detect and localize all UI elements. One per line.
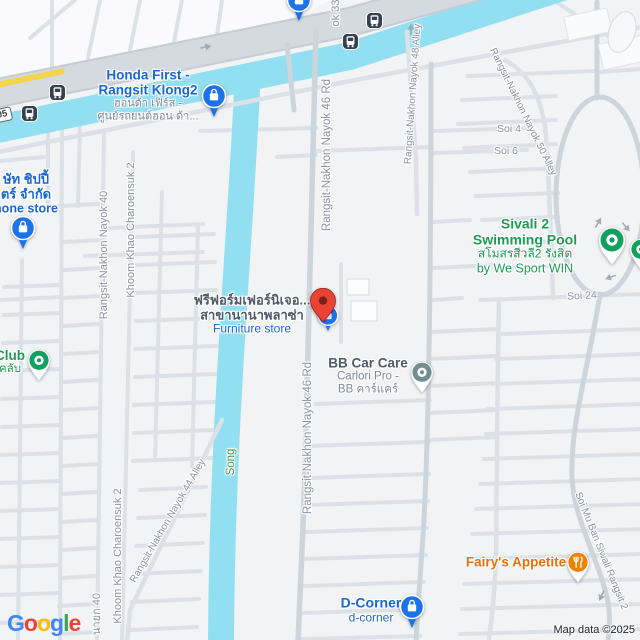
one-way-arrow-icon xyxy=(198,37,211,47)
bb-car-care-label[interactable]: BB Car CareCarlori Pro -BB คาร์แคร์ xyxy=(328,356,408,397)
google-logo-letter: o xyxy=(24,610,37,636)
d-corner-pin[interactable] xyxy=(397,594,427,637)
bus-icon xyxy=(366,12,383,29)
bus-stop-icon[interactable] xyxy=(49,84,66,106)
canal-vertical xyxy=(221,70,248,640)
bus-icon xyxy=(49,84,66,101)
google-logo-letter: o xyxy=(37,610,50,636)
honda-first-label-line: Honda First - xyxy=(97,68,198,83)
bb-car-care-label-line: BB คาร์แคร์ xyxy=(328,384,408,397)
furniture-store-label[interactable]: ฟรีฟอร์มเฟอร์นิเจอ...สาขานานาพลาซ่าFurni… xyxy=(194,294,311,337)
map-attribution: Map data ©2025 xyxy=(554,624,636,636)
fairys-appetite-label-line: Fairy's Appetite xyxy=(466,554,566,569)
poi-cut-top-pin[interactable] xyxy=(284,0,314,30)
google-logo-letter: G xyxy=(7,610,24,636)
sivali-swimming-pool-label-line: สโมสรสีวลี2 รังสิต xyxy=(468,248,583,261)
dot-pin-icon xyxy=(408,359,436,394)
phone-store-label-line: ษัท ชิปปี้ xyxy=(0,172,58,187)
red-marker-icon xyxy=(310,288,336,322)
fairys-appetite-label[interactable]: Fairy's Appetite xyxy=(466,554,566,569)
bus-stop-icon[interactable] xyxy=(21,105,38,127)
dot-pin-icon xyxy=(627,236,640,271)
d-corner-label[interactable]: D-Cornerd-corner xyxy=(341,595,402,624)
one-way-arrow-icon xyxy=(402,23,410,35)
restaurant-pin-icon xyxy=(564,549,592,584)
phone-store-label[interactable]: ษัท ชิปปี้ตร์ จำกัดhone store xyxy=(0,172,58,215)
honda-first-pin[interactable] xyxy=(199,83,229,126)
club-label[interactable]: Clubคลับ xyxy=(0,348,25,376)
club-label-line: คลับ xyxy=(0,363,25,376)
fairys-appetite-pin[interactable] xyxy=(564,549,592,589)
honda-first-label-line: ฮอนด้า เฟิร์ส - xyxy=(97,98,198,110)
bus-stop-icon[interactable] xyxy=(342,33,359,55)
phone-store-label-line: hone store xyxy=(0,202,58,216)
sivali-swimming-pool-label[interactable]: Sivali 2 Swimming Poolสโมสรสีวลี2 รังสิต… xyxy=(468,217,583,276)
phone-store-label-line: ตร์ จำกัด xyxy=(0,187,58,202)
bus-icon xyxy=(342,33,359,50)
google-logo[interactable]: Google xyxy=(7,610,80,637)
poi-cut-right-pin[interactable] xyxy=(627,236,640,276)
shopping-bag-pin-icon xyxy=(284,0,314,25)
bb-car-care-label-line: Carlori Pro - xyxy=(328,371,408,384)
selected-place-marker[interactable] xyxy=(310,288,336,327)
bus-stop-icon[interactable] xyxy=(366,12,383,34)
bb-car-care-pin[interactable] xyxy=(408,359,436,399)
sivali-swimming-pool-label-line: by We Sport WIN xyxy=(468,261,583,275)
shopping-bag-pin-icon xyxy=(8,215,38,253)
phone-store-pin[interactable] xyxy=(8,215,38,258)
honda-first-label-line: Rangsit Klong2 xyxy=(97,83,198,98)
bus-icon xyxy=(21,105,38,122)
dot-pin-icon xyxy=(25,347,53,382)
club-pin[interactable] xyxy=(25,347,53,387)
sivali-swimming-pool-label-line: Sivali 2 Swimming Pool xyxy=(468,217,583,248)
furniture-store-label-line: ฟรีฟอร์มเฟอร์นิเจอ... xyxy=(194,294,311,309)
shopping-bag-pin-icon xyxy=(397,594,427,632)
furniture-store-label-line: Furniture store xyxy=(194,323,311,336)
d-corner-label-line: D-Corner xyxy=(341,595,402,611)
furniture-store-label-line: สาขานานาพลาซ่า xyxy=(194,308,311,323)
google-logo-letter: e xyxy=(68,610,80,636)
d-corner-label-line: d-corner xyxy=(341,611,402,624)
honda-first-label[interactable]: Honda First -Rangsit Klong2ฮอนด้า เฟิร์ส… xyxy=(97,68,198,123)
club-label-line: Club xyxy=(0,348,25,363)
honda-first-label-line: ศูนย์รถยนต์ฮอน ด้า... xyxy=(97,110,198,122)
bb-car-care-label-line: BB Car Care xyxy=(328,356,408,371)
shopping-bag-pin-icon xyxy=(199,83,229,121)
google-logo-letter: g xyxy=(50,610,63,636)
map-canvas[interactable]: Rangsit-Nakhon Nayok 46 RdRangsit-Nakhon… xyxy=(0,0,640,640)
